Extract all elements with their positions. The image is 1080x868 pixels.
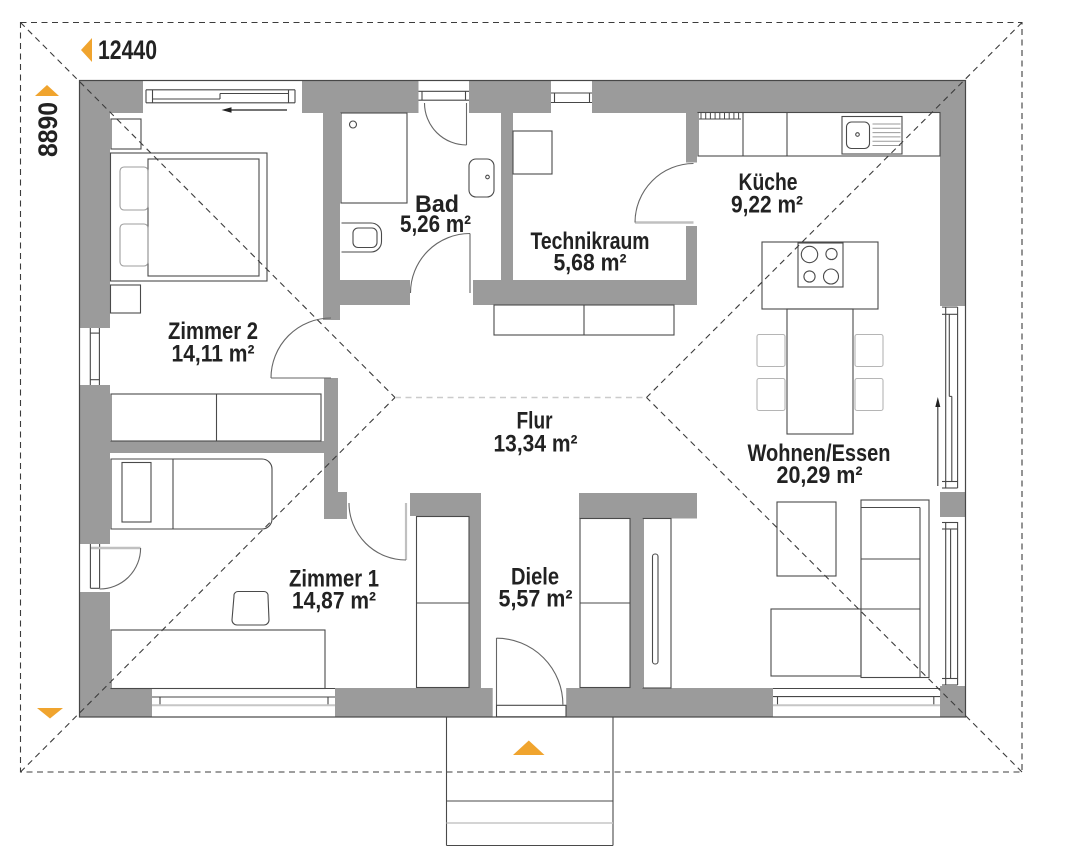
svg-text:13,34 m²: 13,34 m² — [494, 431, 578, 458]
svg-text:14,11 m²: 14,11 m² — [172, 341, 255, 368]
svg-text:12440: 12440 — [98, 35, 157, 65]
svg-text:5,68 m²: 5,68 m² — [554, 250, 627, 277]
svg-text:14,87 m²: 14,87 m² — [292, 588, 376, 615]
svg-text:9,22 m²: 9,22 m² — [731, 192, 803, 219]
svg-text:5,57 m²: 5,57 m² — [499, 586, 573, 613]
svg-text:8890: 8890 — [33, 102, 63, 157]
svg-text:5,26 m²: 5,26 m² — [400, 211, 471, 238]
svg-text:20,29 m²: 20,29 m² — [777, 462, 863, 489]
